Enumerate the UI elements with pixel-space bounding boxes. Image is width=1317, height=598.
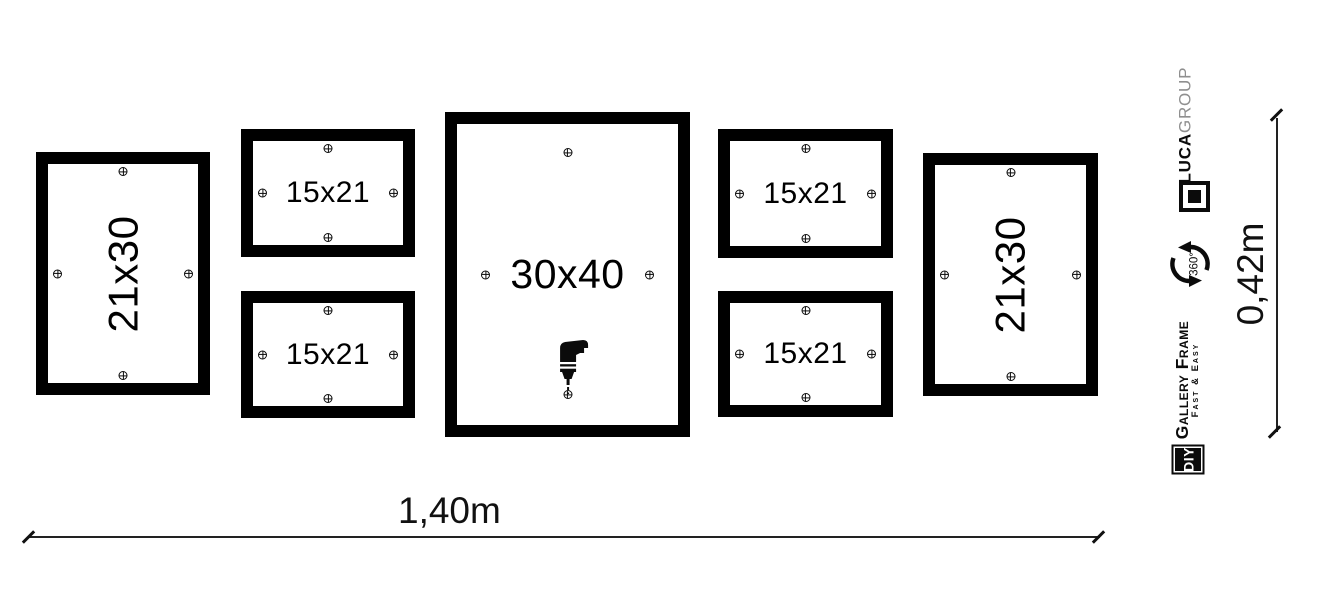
width-dimension-label: 1,40m [398, 492, 501, 529]
frame-size-label: 21x30 [990, 216, 1032, 333]
frame-size-label: 15x21 [763, 339, 847, 369]
frame-size-label: 15x21 [286, 340, 370, 370]
screw-icon [645, 270, 654, 279]
frame-15x21-top-left: 15x21 [241, 129, 415, 257]
rotation-360-label: 360° [1189, 252, 1201, 276]
screw-icon [258, 350, 267, 359]
luca-logo-inner-square [1188, 190, 1201, 203]
screw-icon [53, 269, 62, 278]
screw-icon [735, 350, 744, 359]
screw-icon [389, 350, 398, 359]
screw-icon [1072, 270, 1081, 279]
screw-icon [801, 234, 810, 243]
frame-21x30-left: 21x30 [36, 152, 210, 395]
screw-icon [801, 306, 810, 315]
product-title: Gallery Frame [1173, 312, 1191, 448]
screw-icon [563, 148, 572, 157]
screw-icon [324, 306, 333, 315]
dimension-tick [1268, 425, 1281, 438]
gallery-frame-wordmark: Gallery Frame Fast & Easy [1173, 312, 1207, 448]
screw-icon [184, 269, 193, 278]
width-dimension-line [28, 536, 1100, 538]
gallery-frame-layout-diagram: 21x30 15x21 15x21 30x40 [0, 0, 1317, 598]
diy-badge: DIY [1172, 445, 1205, 475]
screw-icon [119, 167, 128, 176]
screw-icon [324, 233, 333, 242]
frame-size-label: 15x21 [286, 178, 370, 208]
luca-logo-mark [1179, 181, 1210, 212]
screw-icon [735, 189, 744, 198]
screw-icon [258, 189, 267, 198]
screw-icon [1006, 372, 1015, 381]
brand-name-light: GROUP [1175, 67, 1195, 133]
rotation-360-icon: 360° [1167, 233, 1213, 300]
screw-icon [324, 144, 333, 153]
screw-icon [324, 394, 333, 403]
drill-icon [555, 336, 589, 399]
frame-size-label: 30x40 [510, 254, 624, 295]
product-tagline: Fast & Easy [1191, 312, 1201, 448]
brand-name-bold: LUCA [1175, 133, 1195, 183]
frame-15x21-bottom-right: 15x21 [718, 291, 893, 417]
height-dimension-label: 0,42m [1232, 219, 1272, 329]
height-dimension-line [1276, 118, 1278, 432]
screw-icon [867, 350, 876, 359]
frame-15x21-bottom-left: 15x21 [241, 291, 415, 418]
frame-15x21-top-right: 15x21 [718, 129, 893, 258]
frame-size-label: 15x21 [763, 179, 847, 209]
screw-icon [940, 270, 949, 279]
screw-icon [119, 371, 128, 380]
luca-group-wordmark: LUCAGROUP [1175, 64, 1196, 184]
screw-icon [801, 393, 810, 402]
screw-icon [1006, 168, 1015, 177]
screw-icon [389, 189, 398, 198]
frame-30x40-center: 30x40 [445, 112, 690, 437]
frame-size-label: 21x30 [102, 215, 144, 332]
screw-icon [481, 270, 490, 279]
frame-21x30-right: 21x30 [923, 153, 1098, 396]
screw-icon [801, 144, 810, 153]
screw-icon [867, 189, 876, 198]
